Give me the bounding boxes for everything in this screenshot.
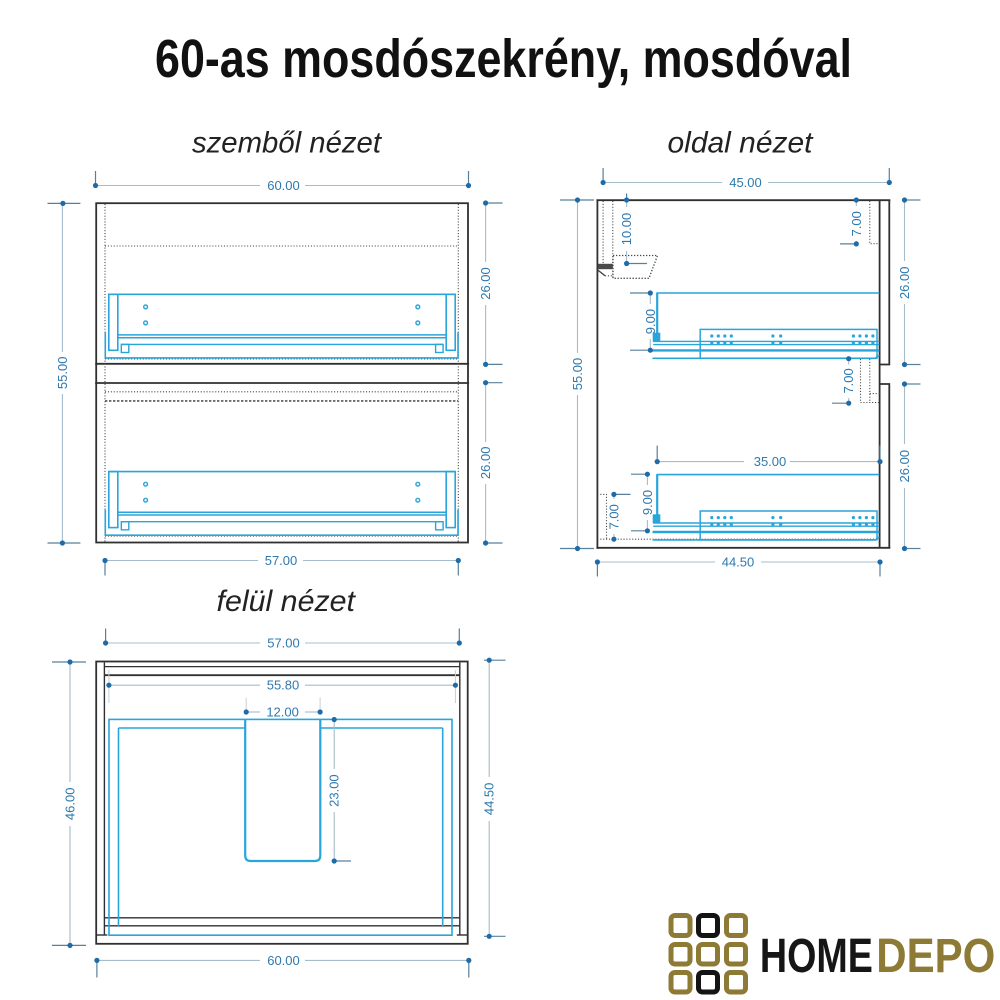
svg-text:55.00: 55.00 <box>570 358 585 391</box>
svg-text:44.50: 44.50 <box>482 783 497 816</box>
svg-text:9.00: 9.00 <box>643 309 658 334</box>
svg-text:7.00: 7.00 <box>841 368 856 393</box>
svg-text:26.00: 26.00 <box>897 267 912 300</box>
svg-text:57.00: 57.00 <box>265 553 298 568</box>
svg-text:26.00: 26.00 <box>897 450 912 483</box>
svg-text:60.00: 60.00 <box>267 953 300 968</box>
svg-text:10.00: 10.00 <box>619 213 634 246</box>
svg-text:26.00: 26.00 <box>478 267 493 300</box>
svg-text:26.00: 26.00 <box>478 447 493 480</box>
svg-text:oldal nézet: oldal nézet <box>668 127 815 160</box>
svg-text:55.80: 55.80 <box>267 678 300 693</box>
svg-text:57.00: 57.00 <box>267 636 300 651</box>
svg-text:45.00: 45.00 <box>729 175 762 190</box>
svg-text:60-as mosdószekrény, mosdóval: 60-as mosdószekrény, mosdóval <box>155 29 852 89</box>
svg-text:szemből nézet: szemből nézet <box>192 127 383 160</box>
svg-text:44.50: 44.50 <box>722 555 755 570</box>
svg-text:12.00: 12.00 <box>266 705 299 720</box>
svg-text:9.00: 9.00 <box>640 490 655 515</box>
svg-text:HOME: HOME <box>760 930 873 983</box>
svg-text:7.00: 7.00 <box>606 504 621 529</box>
svg-text:35.00: 35.00 <box>754 454 787 469</box>
svg-text:23.00: 23.00 <box>327 774 342 807</box>
svg-text:felül nézet: felül nézet <box>217 585 357 618</box>
svg-text:55.00: 55.00 <box>55 357 70 390</box>
svg-text:DEPO: DEPO <box>876 930 995 983</box>
svg-text:46.00: 46.00 <box>63 788 78 821</box>
svg-text:7.00: 7.00 <box>849 211 864 236</box>
svg-text:60.00: 60.00 <box>267 178 300 193</box>
